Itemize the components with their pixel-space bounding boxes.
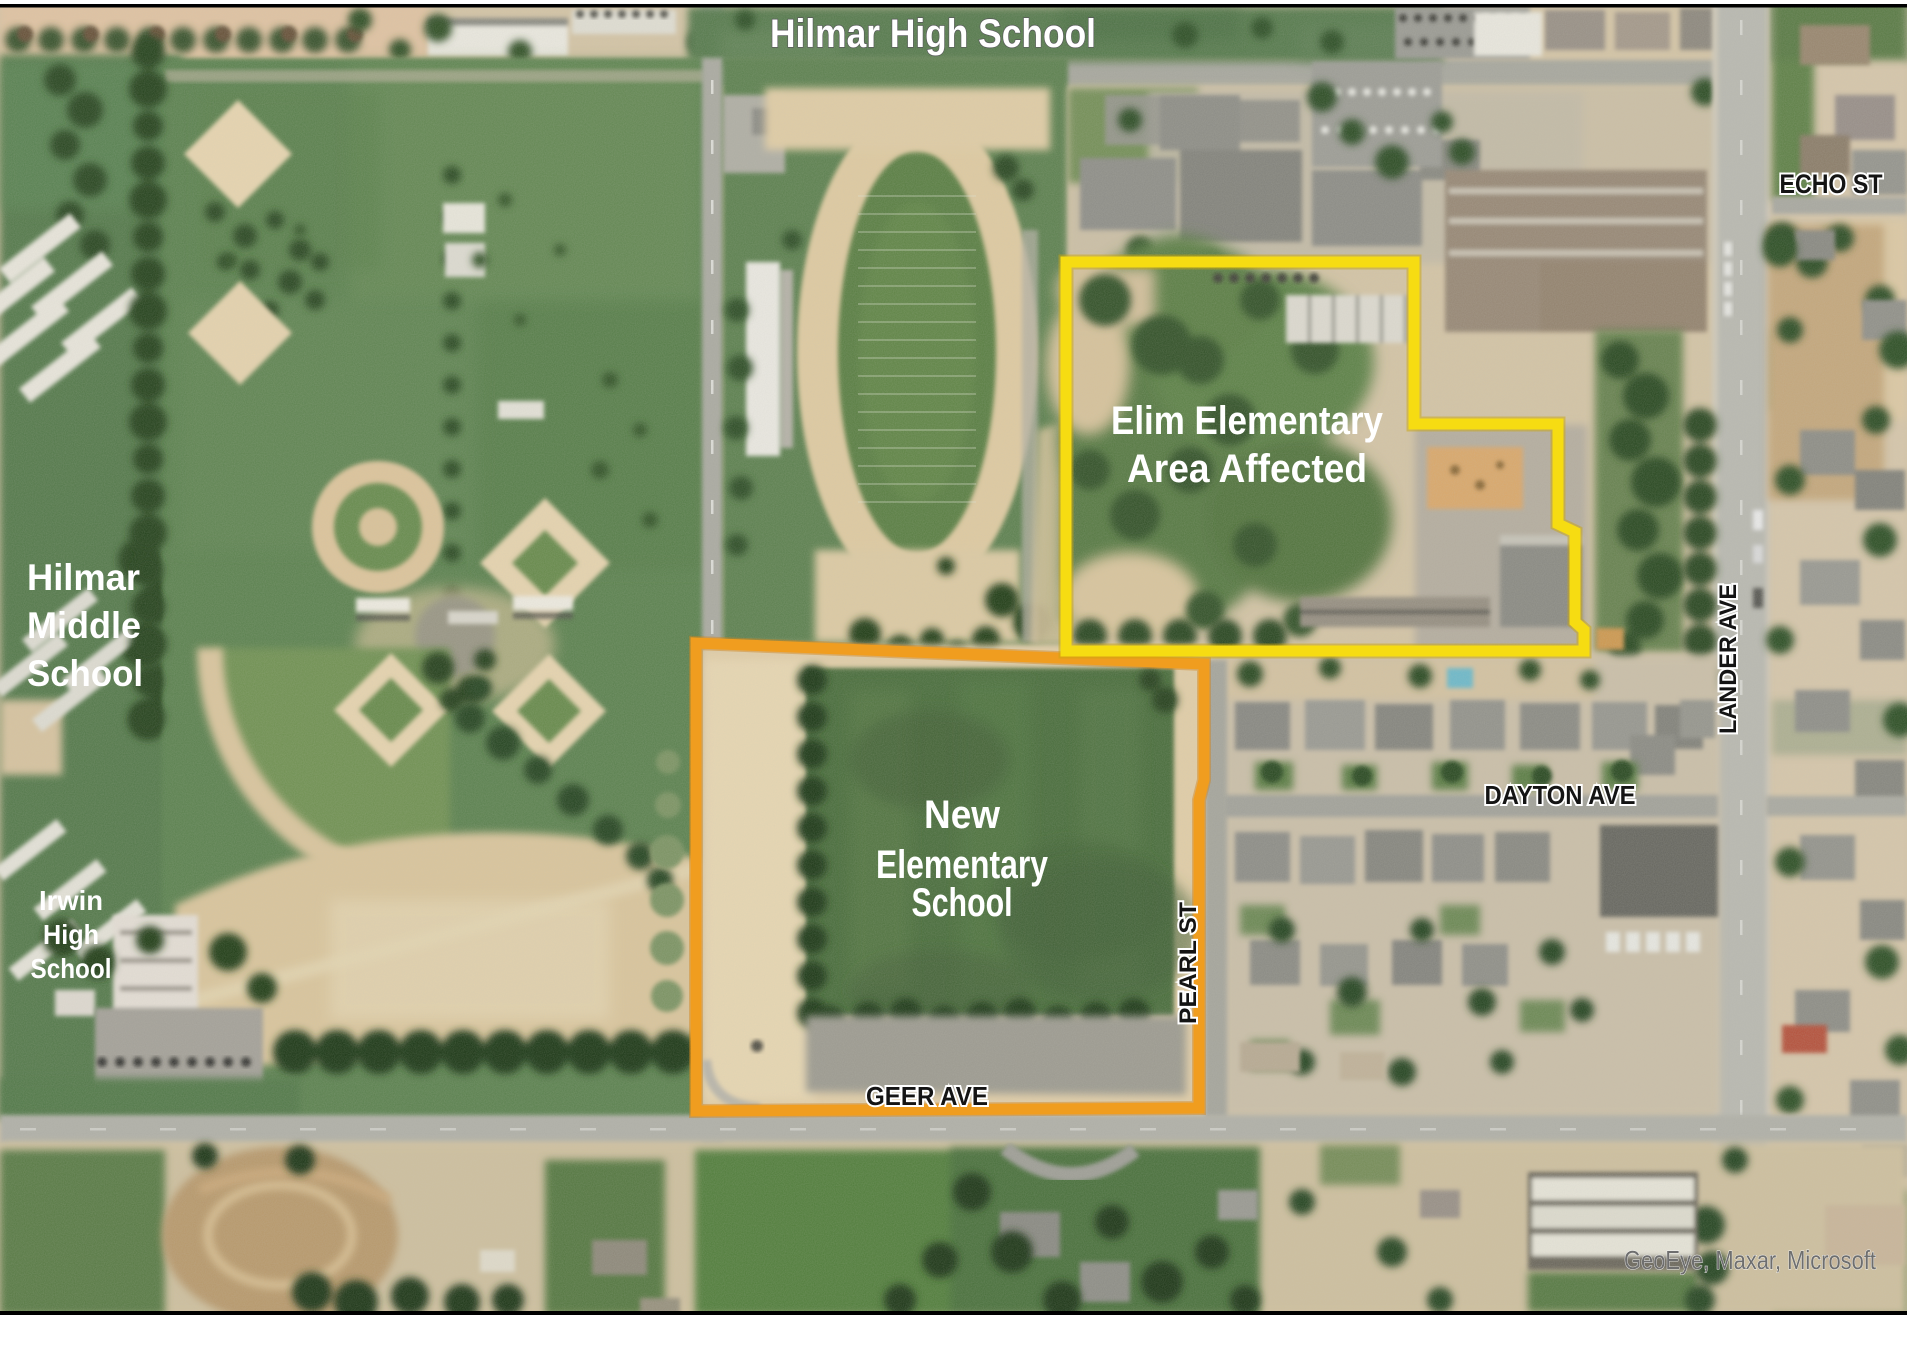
svg-text:Middle: Middle <box>27 605 141 646</box>
svg-text:LANDER AVE: LANDER AVE <box>1715 584 1742 734</box>
svg-text:Hilmar: Hilmar <box>27 557 140 598</box>
svg-text:High: High <box>43 919 99 950</box>
svg-text:PEARL ST: PEARL ST <box>1175 902 1202 1024</box>
svg-text:DAYTON AVE: DAYTON AVE <box>1485 780 1636 810</box>
svg-text:ECHO ST: ECHO ST <box>1780 169 1883 199</box>
svg-text:GeoEye, Maxar, Microsoft: GeoEye, Maxar, Microsoft <box>1624 1245 1877 1275</box>
svg-text:Irwin: Irwin <box>39 885 103 916</box>
svg-text:Area Affected: Area Affected <box>1127 447 1367 491</box>
svg-text:Hilmar High School: Hilmar High School <box>770 12 1096 56</box>
svg-text:Elim Elementary: Elim Elementary <box>1111 399 1384 443</box>
svg-text:School: School <box>31 953 112 984</box>
svg-text:School: School <box>27 653 143 694</box>
svg-text:School: School <box>912 881 1013 925</box>
svg-text:New: New <box>924 793 1001 837</box>
svg-text:GEER AVE: GEER AVE <box>866 1081 988 1111</box>
